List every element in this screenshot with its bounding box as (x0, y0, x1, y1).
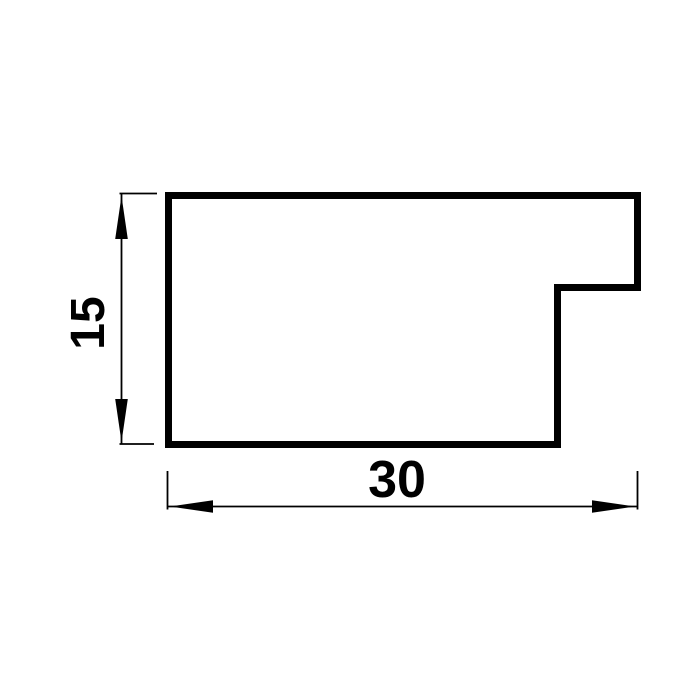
up-arrowhead-icon (115, 196, 128, 239)
profile-outline (169, 196, 638, 445)
left-arrowhead-icon (170, 500, 213, 513)
drawing-canvas: 15 30 (0, 0, 700, 700)
width-dimension-label: 30 (368, 451, 426, 509)
height-dimension-label: 15 (62, 296, 115, 349)
right-arrowhead-icon (592, 500, 635, 513)
down-arrowhead-icon (115, 399, 128, 442)
height-dimension: 15 (62, 194, 157, 445)
technical-drawing: 15 30 (0, 0, 700, 700)
width-dimension: 30 (168, 451, 638, 513)
